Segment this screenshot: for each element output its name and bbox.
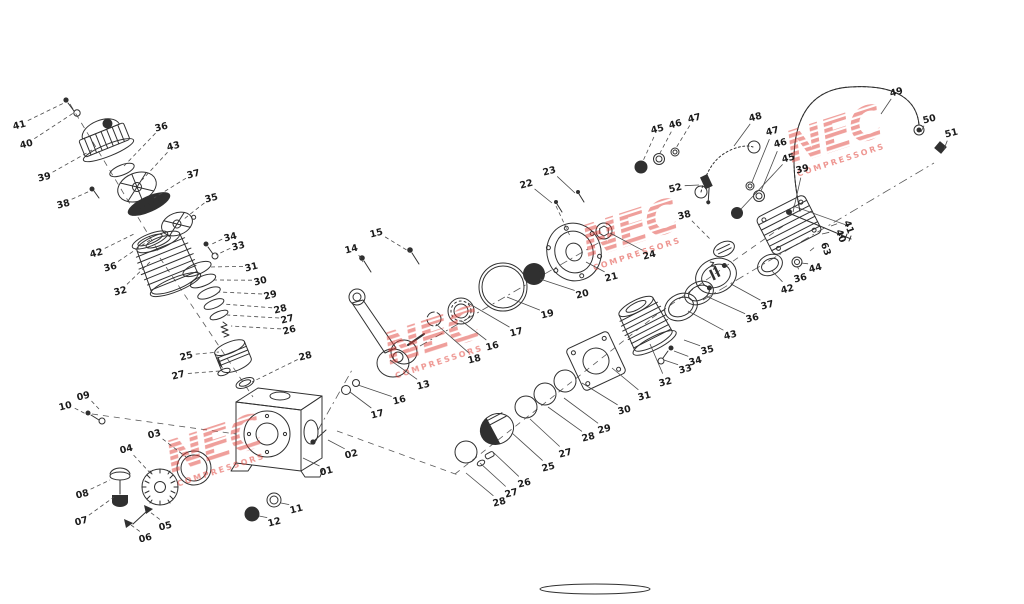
part-label-04: 04 [119,443,135,457]
part-label-17: 17 [370,408,386,422]
part-label-38: 38 [56,198,72,212]
unloader-fitting-52 [695,174,719,205]
part-label-63: 63 [818,241,833,257]
part-label-52: 52 [668,182,684,196]
part-label-37: 37 [186,168,202,182]
leader-line [150,512,160,519]
ring-28-left [235,375,256,390]
piston-25-right [475,408,519,450]
part-label-21: 21 [604,271,620,285]
leader-line [105,233,136,248]
part-label-51: 51 [944,127,960,141]
ring-28-right [455,441,477,463]
part-label-27: 27 [171,369,187,383]
leader-line [564,398,598,423]
part-label-31: 31 [244,261,260,275]
part-label-45: 45 [650,123,666,137]
fitting-46-right [754,191,765,202]
leader-line [72,191,90,199]
part-label-30: 30 [617,404,633,418]
piston-rings-27-30 [515,370,576,418]
cover-bolts-22-23 [554,190,584,212]
leader-line [741,164,783,209]
part-label-47: 47 [687,112,703,126]
leader-line [328,440,345,449]
part-label-29: 29 [263,289,279,303]
part-label-23: 23 [542,165,558,179]
washer-47-left [671,148,679,156]
part-label-02: 02 [344,448,360,462]
leader-line [91,480,110,489]
part-label-16: 16 [485,340,501,354]
part-label-26: 26 [282,324,298,338]
leader-line [535,189,552,203]
part-label-48: 48 [748,111,764,125]
part-label-32: 32 [113,285,129,299]
leader-line [582,383,618,405]
base-gasket-31 [565,330,626,391]
leader-line [131,525,140,531]
part-label-38: 38 [677,209,693,223]
valve-spring-stack-31-27 [181,258,229,322]
part-label-31: 31 [637,390,653,404]
exploded-parts-diagram: NECCOMPRESSORSNECCOMPRESSORSNECCOMPRESSO… [0,0,1024,604]
scan-smudge [540,584,650,594]
leader-line [34,112,75,139]
fastener-05-06 [124,505,153,528]
part-label-09: 09 [76,390,92,404]
cylinder-head-39-right [755,194,822,256]
inlet-nut-45-left [635,161,647,173]
part-label-08: 08 [75,488,91,502]
leader-line [227,315,279,318]
oil-seal-20 [523,263,545,285]
part-label-17: 17 [509,326,525,340]
part-label-33: 33 [678,363,694,377]
leader-line [480,463,506,487]
bolt-38 [90,187,100,199]
leader-line [512,433,543,461]
part-label-25: 25 [179,350,195,364]
part-label-35: 35 [700,344,716,358]
part-label-15: 15 [369,227,385,241]
part-label-25: 25 [541,461,557,475]
washer-47-right [746,182,754,190]
rod-bolt-15 [407,247,419,264]
part-label-27: 27 [504,487,520,501]
leader-line [219,292,262,294]
leader-line [385,237,410,252]
leader-line [734,124,750,146]
air-filter-39 [72,111,136,166]
leader-line [28,103,64,121]
leader-line [674,351,688,356]
bolt-34-washer-33-right [658,346,674,365]
leader-line [252,360,298,383]
part-label-28: 28 [581,431,597,445]
part-label-47: 47 [765,125,781,139]
leader-line [53,150,92,172]
leader-line [660,132,671,153]
intake-elbow-48 [695,141,760,198]
oil-plug-12 [245,507,259,521]
part-label-06: 06 [138,532,154,546]
part-label-49: 49 [889,86,905,100]
leader-line [650,344,663,374]
leader-line [134,455,152,475]
part-label-43: 43 [166,140,182,154]
gasket-19 [479,263,527,311]
valve-plate-37-right [690,252,742,301]
leader-line [92,401,100,409]
leader-line [210,239,222,245]
leader-line [643,137,654,161]
leader-line [184,203,204,219]
leader-line [822,232,829,234]
leader-line [684,340,700,346]
part-label-20: 20 [575,288,591,302]
hose-nipple-50 [914,125,924,135]
part-label-37: 37 [760,299,776,313]
part-label-26: 26 [517,477,533,491]
part-label-01: 01 [319,465,335,479]
part-label-30: 30 [253,275,269,289]
part-label-35: 35 [204,192,220,206]
part-label-36: 36 [793,272,809,286]
watermark-stamp: NECCOMPRESSORS [158,403,271,489]
leader-line [810,248,814,251]
leader-line [752,139,769,182]
leader-line [259,516,267,518]
rod-bolt-14 [359,255,371,272]
part-label-11: 11 [289,503,305,517]
leader-line [664,360,678,365]
part-label-33: 33 [231,240,247,254]
part-label-41: 41 [12,119,28,133]
leader-line [548,407,582,431]
part-label-22: 22 [519,178,535,192]
part-label-36: 36 [103,261,119,275]
part-label-05: 05 [158,520,174,534]
leader-line [142,152,168,180]
leader-line [127,262,150,284]
leader-line [223,304,272,308]
leader-line [731,284,760,300]
breather-08-07 [110,468,130,507]
leader-line [692,221,711,240]
part-label-12: 12 [267,516,283,530]
leader-line [530,419,560,447]
leader-line [831,224,837,226]
part-label-40: 40 [19,138,35,152]
diaphragm-37 [125,187,174,220]
part-label-39: 39 [37,171,53,185]
leader-line [231,326,281,329]
head-gasket-42-right [754,250,786,280]
bolt-34-washer-33 [204,242,219,260]
part-label-19: 19 [540,308,556,322]
leader-line [89,497,114,515]
leader-line [75,408,86,414]
part-label-50: 50 [922,113,938,127]
part-label-18: 18 [467,353,483,367]
part-label-42: 42 [780,283,796,297]
part-label-36: 36 [745,312,761,326]
leader-line [881,99,891,114]
pin-26-clips-27 [476,451,495,467]
spring-26 [221,322,229,337]
leader-line [557,176,575,193]
part-label-43: 43 [723,329,739,343]
leader-line [685,185,699,186]
part-label-13: 13 [416,379,432,393]
part-label-10: 10 [58,400,74,414]
watermark-stamp: NECCOMPRESSORS [376,295,489,381]
reed-valve-38-right [704,238,740,270]
leader-line [210,266,243,267]
part-label-44: 44 [808,262,824,276]
leader-line [706,296,745,314]
leader-line [688,311,723,330]
filter-gasket-36 [108,160,136,179]
part-label-36: 36 [154,121,170,135]
part-label-29: 29 [597,423,613,437]
leader-line [281,503,289,505]
part-label-14: 14 [344,243,360,257]
part-label-27: 27 [558,447,574,461]
diagram-canvas: NECCOMPRESSORSNECCOMPRESSORSNECCOMPRESSO… [0,0,1024,604]
part-label-32: 32 [658,376,674,390]
washer-11 [267,493,281,507]
leader-line [216,248,230,255]
bolt-09-10 [86,411,106,425]
part-label-46: 46 [668,118,684,132]
head-nut-44 [792,257,802,267]
watermark-stamp: NECCOMPRESSORS [574,187,687,273]
inlet-fitting-46-left [654,154,665,165]
valve-plate-35 [158,206,200,240]
part-label-28: 28 [298,350,314,364]
leader-line [196,352,219,354]
piston-25-left [213,337,254,376]
leader-line [188,371,220,374]
leader-line [358,385,392,397]
part-label-16: 16 [392,394,408,408]
leader-line [466,473,493,496]
leader-line [350,392,371,408]
leader-line [494,453,519,476]
part-label-07: 07 [74,515,90,529]
part-label-42: 42 [89,247,105,261]
